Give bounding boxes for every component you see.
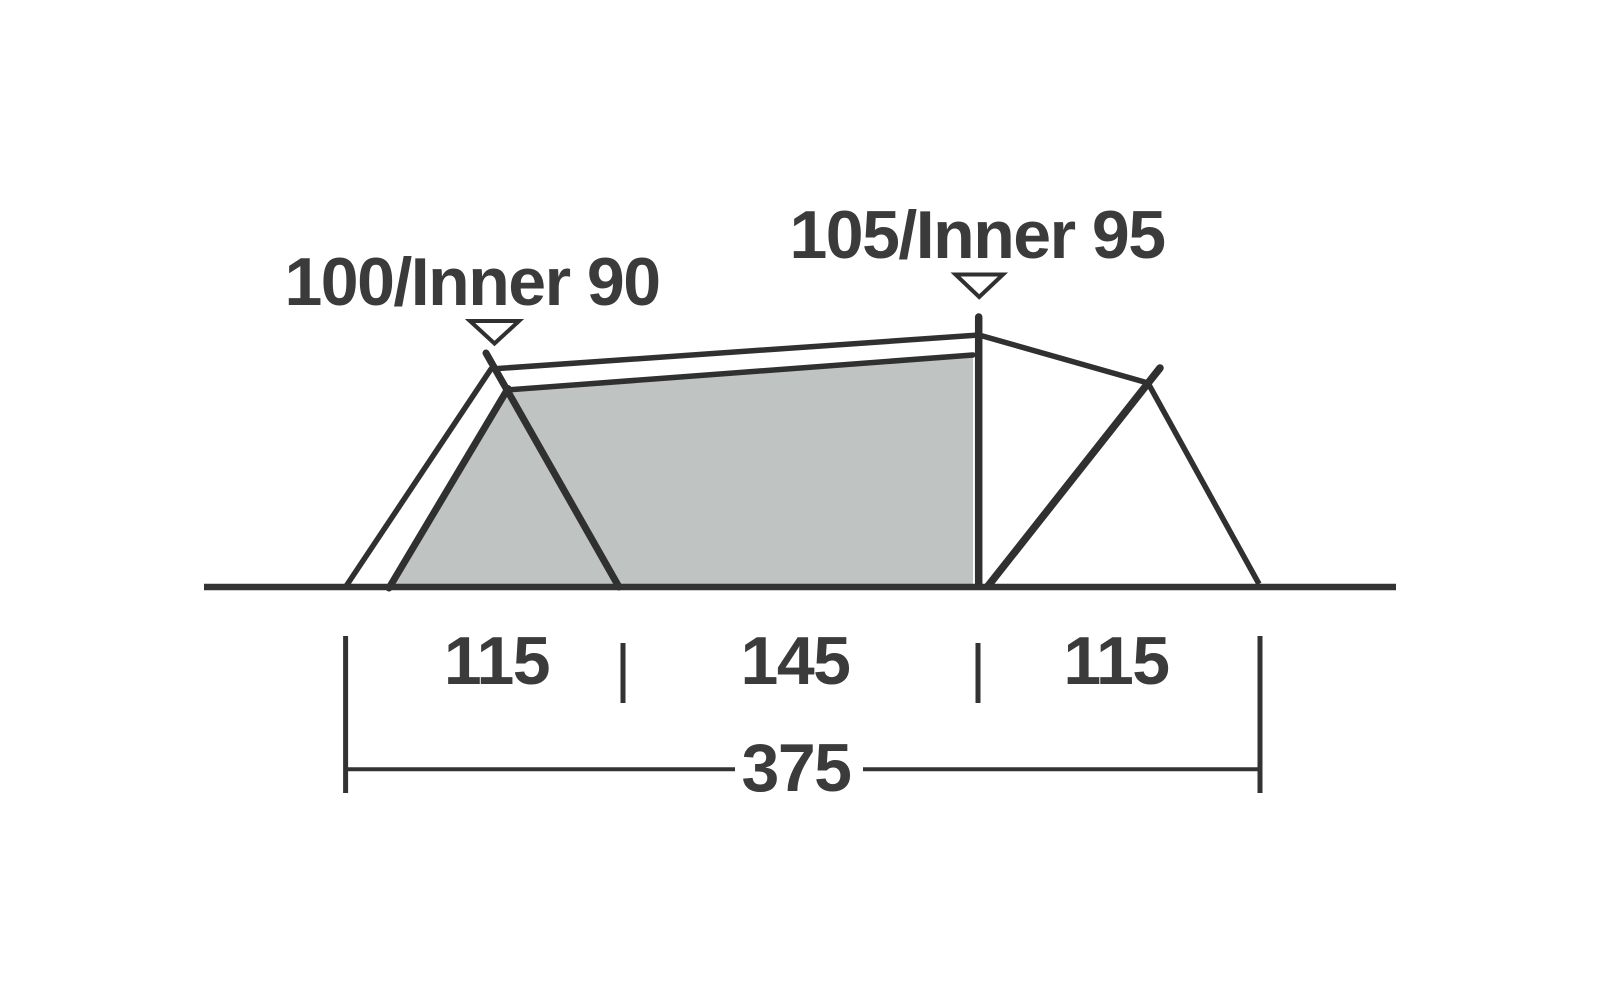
- svg-text:145: 145: [741, 623, 850, 699]
- svg-text:105/Inner 95: 105/Inner 95: [789, 197, 1164, 273]
- svg-text:115: 115: [1063, 623, 1168, 699]
- svg-text:100/Inner 90: 100/Inner 90: [284, 244, 659, 320]
- svg-text:375: 375: [742, 730, 851, 806]
- svg-text:115: 115: [444, 623, 549, 699]
